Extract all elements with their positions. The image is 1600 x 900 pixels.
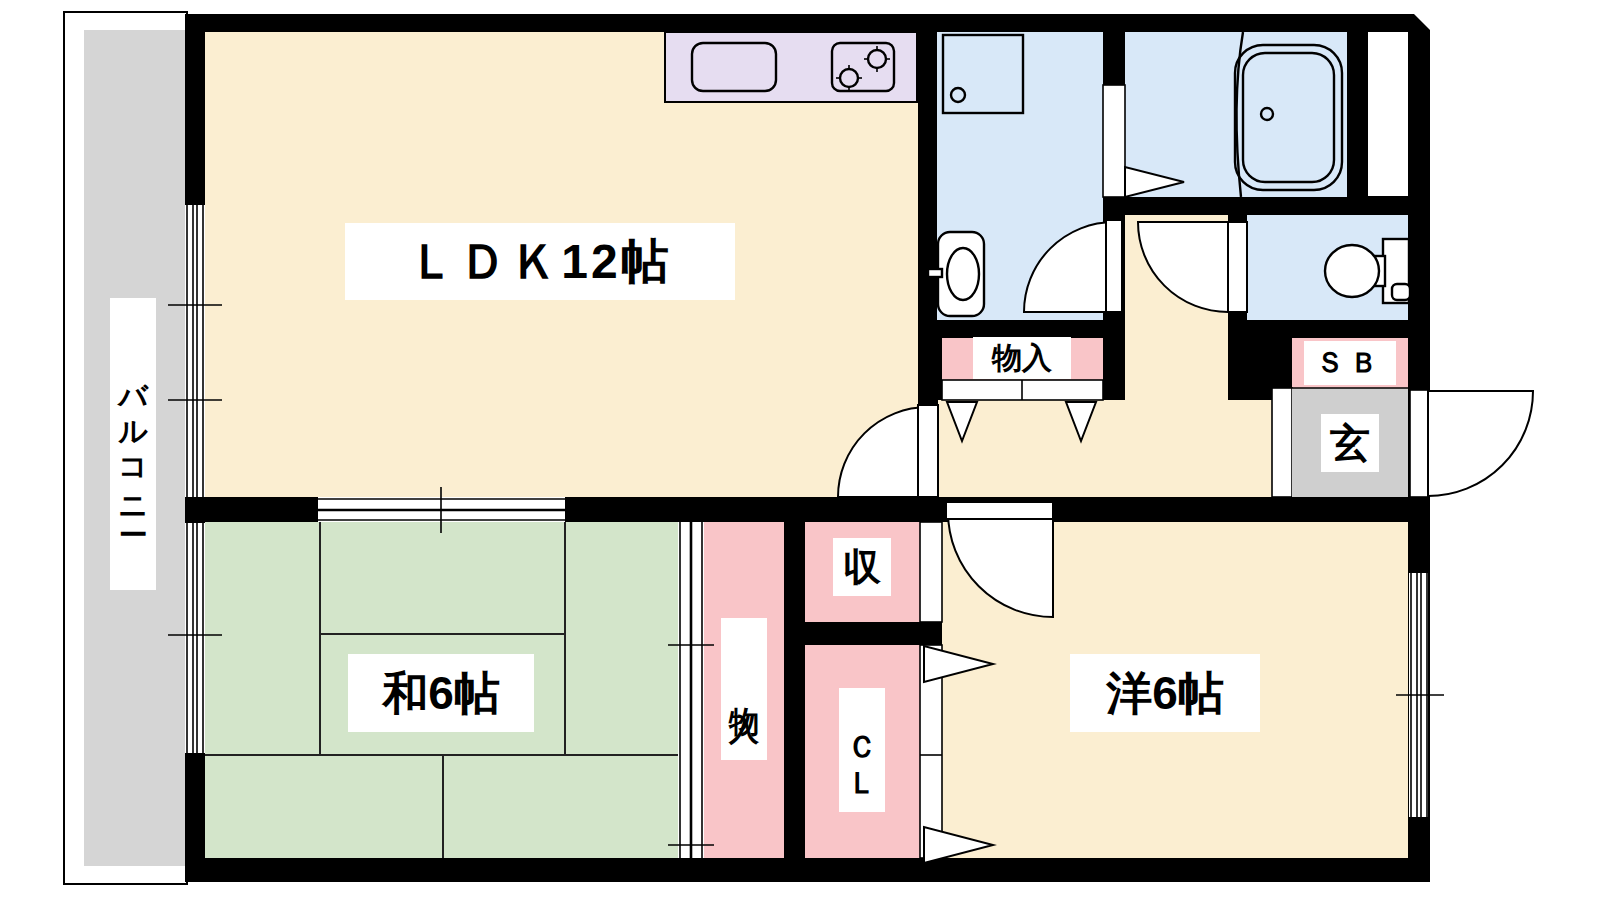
label-tatami-storage: 物入 (721, 618, 767, 760)
hallway-horizontal (938, 400, 1272, 497)
label-japanese-room: 和6帖 (348, 654, 534, 732)
kitchen-counter-icon (665, 32, 917, 102)
label-storage-shu: 収 (833, 538, 891, 596)
label-entrance: 玄 (1321, 414, 1379, 472)
label-western-room: 洋6帖 (1070, 654, 1260, 732)
label-ldk: ＬＤＫ12帖 (345, 223, 735, 300)
toilet-icon (1325, 239, 1410, 303)
entrance-door (1410, 390, 1533, 497)
floor-plan: ＬＤＫ12帖 和6帖 洋6帖 物入 ＳＢ 玄 収 ＣＬ 物入 バルコニー (0, 0, 1600, 900)
label-balcony: バルコニー (110, 298, 156, 590)
label-closet: ＣＬ (839, 688, 885, 812)
label-shoe-box: ＳＢ (1304, 341, 1396, 385)
pipe-space (1368, 32, 1408, 196)
label-hall-storage: 物入 (973, 337, 1071, 379)
entrance-step (1272, 388, 1292, 497)
